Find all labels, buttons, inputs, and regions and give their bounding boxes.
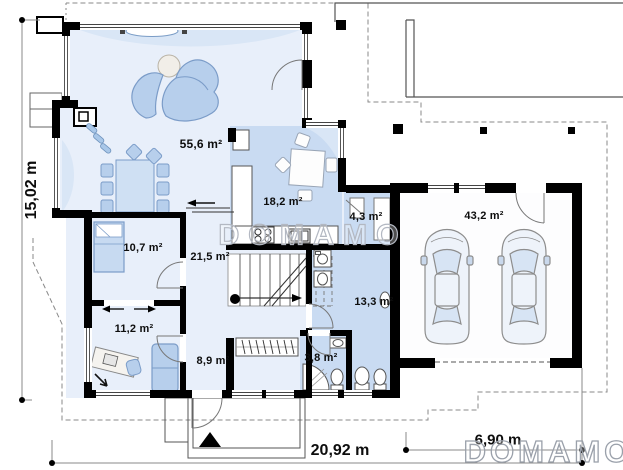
entrance-arrow — [199, 432, 221, 447]
room-label-wc: 3,8 m² — [305, 352, 338, 364]
dimension-left: 15,02 m — [23, 161, 41, 220]
bed — [94, 222, 124, 272]
room-label-kitchen: 18,2 m² — [263, 196, 302, 208]
room-label-living: 55,6 m² — [180, 137, 223, 151]
room-label-bathroom: 13,3 m² — [354, 296, 393, 308]
car-2 — [498, 230, 550, 345]
wardrobe — [236, 338, 298, 356]
entrance-porch — [165, 398, 305, 458]
watermark-center: DOMAMO — [218, 220, 407, 253]
bathroom-sink — [314, 271, 331, 287]
dimension-bottom: 20,92 m — [311, 442, 370, 460]
wc-toilet — [331, 369, 343, 390]
bathroom-bidet — [374, 369, 386, 390]
car-1 — [421, 230, 473, 345]
terrace-outline — [335, 3, 623, 97]
office-sofa — [152, 344, 178, 392]
room-label-bedroom: 10,7 m² — [123, 242, 162, 254]
front-door — [192, 398, 222, 428]
watermark-corner: DOMAMO — [464, 434, 623, 470]
room-label-hall: 21,5 m² — [190, 251, 229, 263]
room-label-corridor: 8,9 m² — [197, 355, 230, 367]
wc-sink — [330, 338, 346, 348]
room-label-office: 11,2 m² — [115, 323, 154, 335]
bathroom-toilet — [355, 367, 369, 390]
roof-posts — [393, 124, 575, 134]
floor-plan-page: 55,6 m² 18,2 m² 4,3 m² 43,2 m² 10,7 m² 2… — [0, 0, 623, 470]
room-label-garage: 43,2 m² — [464, 210, 503, 222]
washing-machine — [314, 250, 331, 267]
